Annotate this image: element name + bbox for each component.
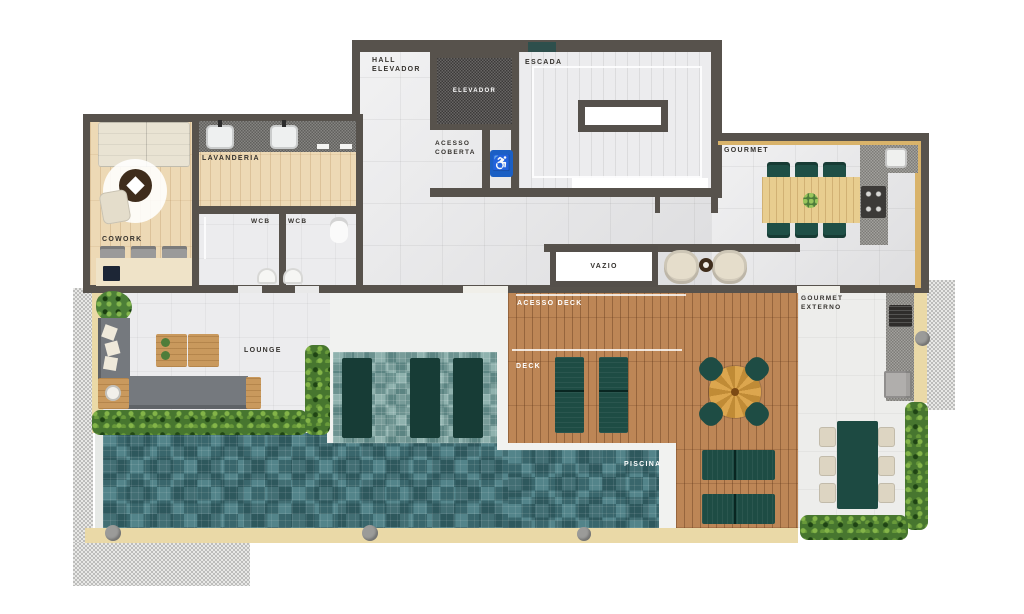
deck-label: DECK [516,362,541,371]
externo-hedge-bottom [800,515,908,540]
pool-edge-right [659,450,676,528]
wall-core-left [352,40,360,121]
lounge-sofa-horizontal [127,376,248,409]
left-stone-border [73,288,93,548]
right-stone-ledge [927,280,955,410]
externo-post [915,331,930,346]
gourmet-label: GOURMET [724,146,769,155]
threshold-gourmet-externo [797,286,840,293]
lounge-coffee-table-1 [156,334,187,367]
gourmet-stove [861,186,886,218]
externo-grill [889,305,912,327]
threshold-wcb-left [238,286,262,293]
vazio-label: VAZIO [590,262,617,271]
pool-bottom-trim [85,528,798,543]
externo-right-trim [914,293,927,403]
wheelchair-accessible-sign: ♿ [490,150,513,177]
wheelchair-accessible-icon: ♿ [492,156,511,171]
wall-gourmet-top [711,133,929,141]
pool-post-2 [362,525,378,541]
laundry-sink-1-faucet [218,120,222,127]
hall-elevador-label: HALL ELEVADOR [372,56,421,75]
piscina-label: PISCINA [624,460,662,469]
externo-chair-right-2 [878,456,895,476]
lounge-label: LOUNGE [244,346,282,355]
cowork-laptop [103,266,120,281]
wcb-left-label: WCB [251,218,270,227]
externo-chair-left-1 [819,427,836,447]
deck-lounger-4 [702,494,775,524]
cowork-armchair [98,189,131,225]
externo-appliance [884,371,912,398]
pool-edge-top-right [497,443,676,450]
acesso-deck-label: ACESSO DECK [517,299,583,308]
wall-acesso-right [482,130,490,188]
wcb-right-label: WCB [288,218,307,227]
gourmet-chair-bottom-2 [795,221,818,238]
pool-shelf-lounger-2 [410,358,440,438]
wcb-left-shower-glass [204,217,206,259]
niche-side-table-plate [703,262,709,268]
laundry-sink-2-faucet [282,120,286,127]
elevador-label: ELEVADOR [437,58,512,124]
gourmet-chair-bottom-3 [823,221,846,238]
externo-chair-left-3 [819,483,836,503]
gourmet-sink [885,148,907,168]
wcb-left-basin [257,268,277,284]
wall-gourmet-right [921,133,929,293]
deck-lounger-3 [702,450,775,480]
deck-lounger-1 [555,357,584,433]
pool-shelf-lounger-3 [453,358,483,438]
lounge-end-table-plate [105,385,121,401]
externo-chair-right-3 [878,483,895,503]
wall-cowork-divider [192,121,199,286]
deck-edge-line-top [516,294,686,296]
externo-chair-left-2 [819,456,836,476]
lounge-coffee-table-2 [188,334,219,367]
deck-table-center [731,388,739,396]
vazio-box: VAZIO [550,246,658,287]
bottom-left-stone [73,543,250,586]
gourmet-chair-bottom-1 [767,221,790,238]
wcb-right-toilet [330,217,348,243]
gourmet-table-plant [803,193,818,208]
deck-lounger-2 [599,357,628,433]
niche-armchair-1 [664,250,699,284]
roof-teal-inset [528,42,556,52]
lounge-hedge-bottom [92,410,308,435]
escada-label: ESCADA [525,58,562,67]
externo-hedge-right [905,402,928,530]
laundry-sink-1 [206,125,234,149]
cowork-label: COWORK [102,235,142,244]
gourmet-door-leaf [655,196,660,213]
threshold-wcb-right [295,286,319,293]
acesso-coberta-label: ACESSO COBERTA [435,140,476,158]
pool-post-1 [105,525,121,541]
lounge-pillow-3 [103,356,118,371]
coffee-table-plant-1 [161,338,170,347]
coffee-table-plant-2 [161,351,170,360]
floorplan-canvas: ♿ VAZIO [0,0,1024,614]
wall-wing-right [356,114,363,213]
wall-lavanderia-wcb [192,206,363,214]
lavanderia-label: LAVANDERIA [202,154,260,163]
counter-towel-2 [340,144,352,149]
wcb-right-basin [283,268,303,284]
pool-post-3 [577,527,591,541]
pool-shelf-lounger-1 [342,358,372,438]
gourmet-externo-label: GOURMET EXTERNO [801,295,843,313]
laundry-sink-2 [270,125,298,149]
externo-chair-right-1 [878,427,895,447]
externo-dining-table [837,421,878,509]
lounge-end-table-right [246,377,261,409]
counter-towel-1 [317,144,329,149]
lounge-hedge-right [305,345,330,435]
pool-surround-marble [330,293,508,352]
stair-void [578,100,668,132]
wall-core-bottom [430,188,722,197]
wall-wing-left [83,114,90,293]
stair-landing [572,178,708,188]
wall-wcb-right [356,213,363,293]
threshold-acesso-deck [463,286,508,293]
deck-edge-line-mid [512,349,682,351]
wall-gourmet-left [711,133,718,213]
niche-armchair-2 [712,250,747,284]
